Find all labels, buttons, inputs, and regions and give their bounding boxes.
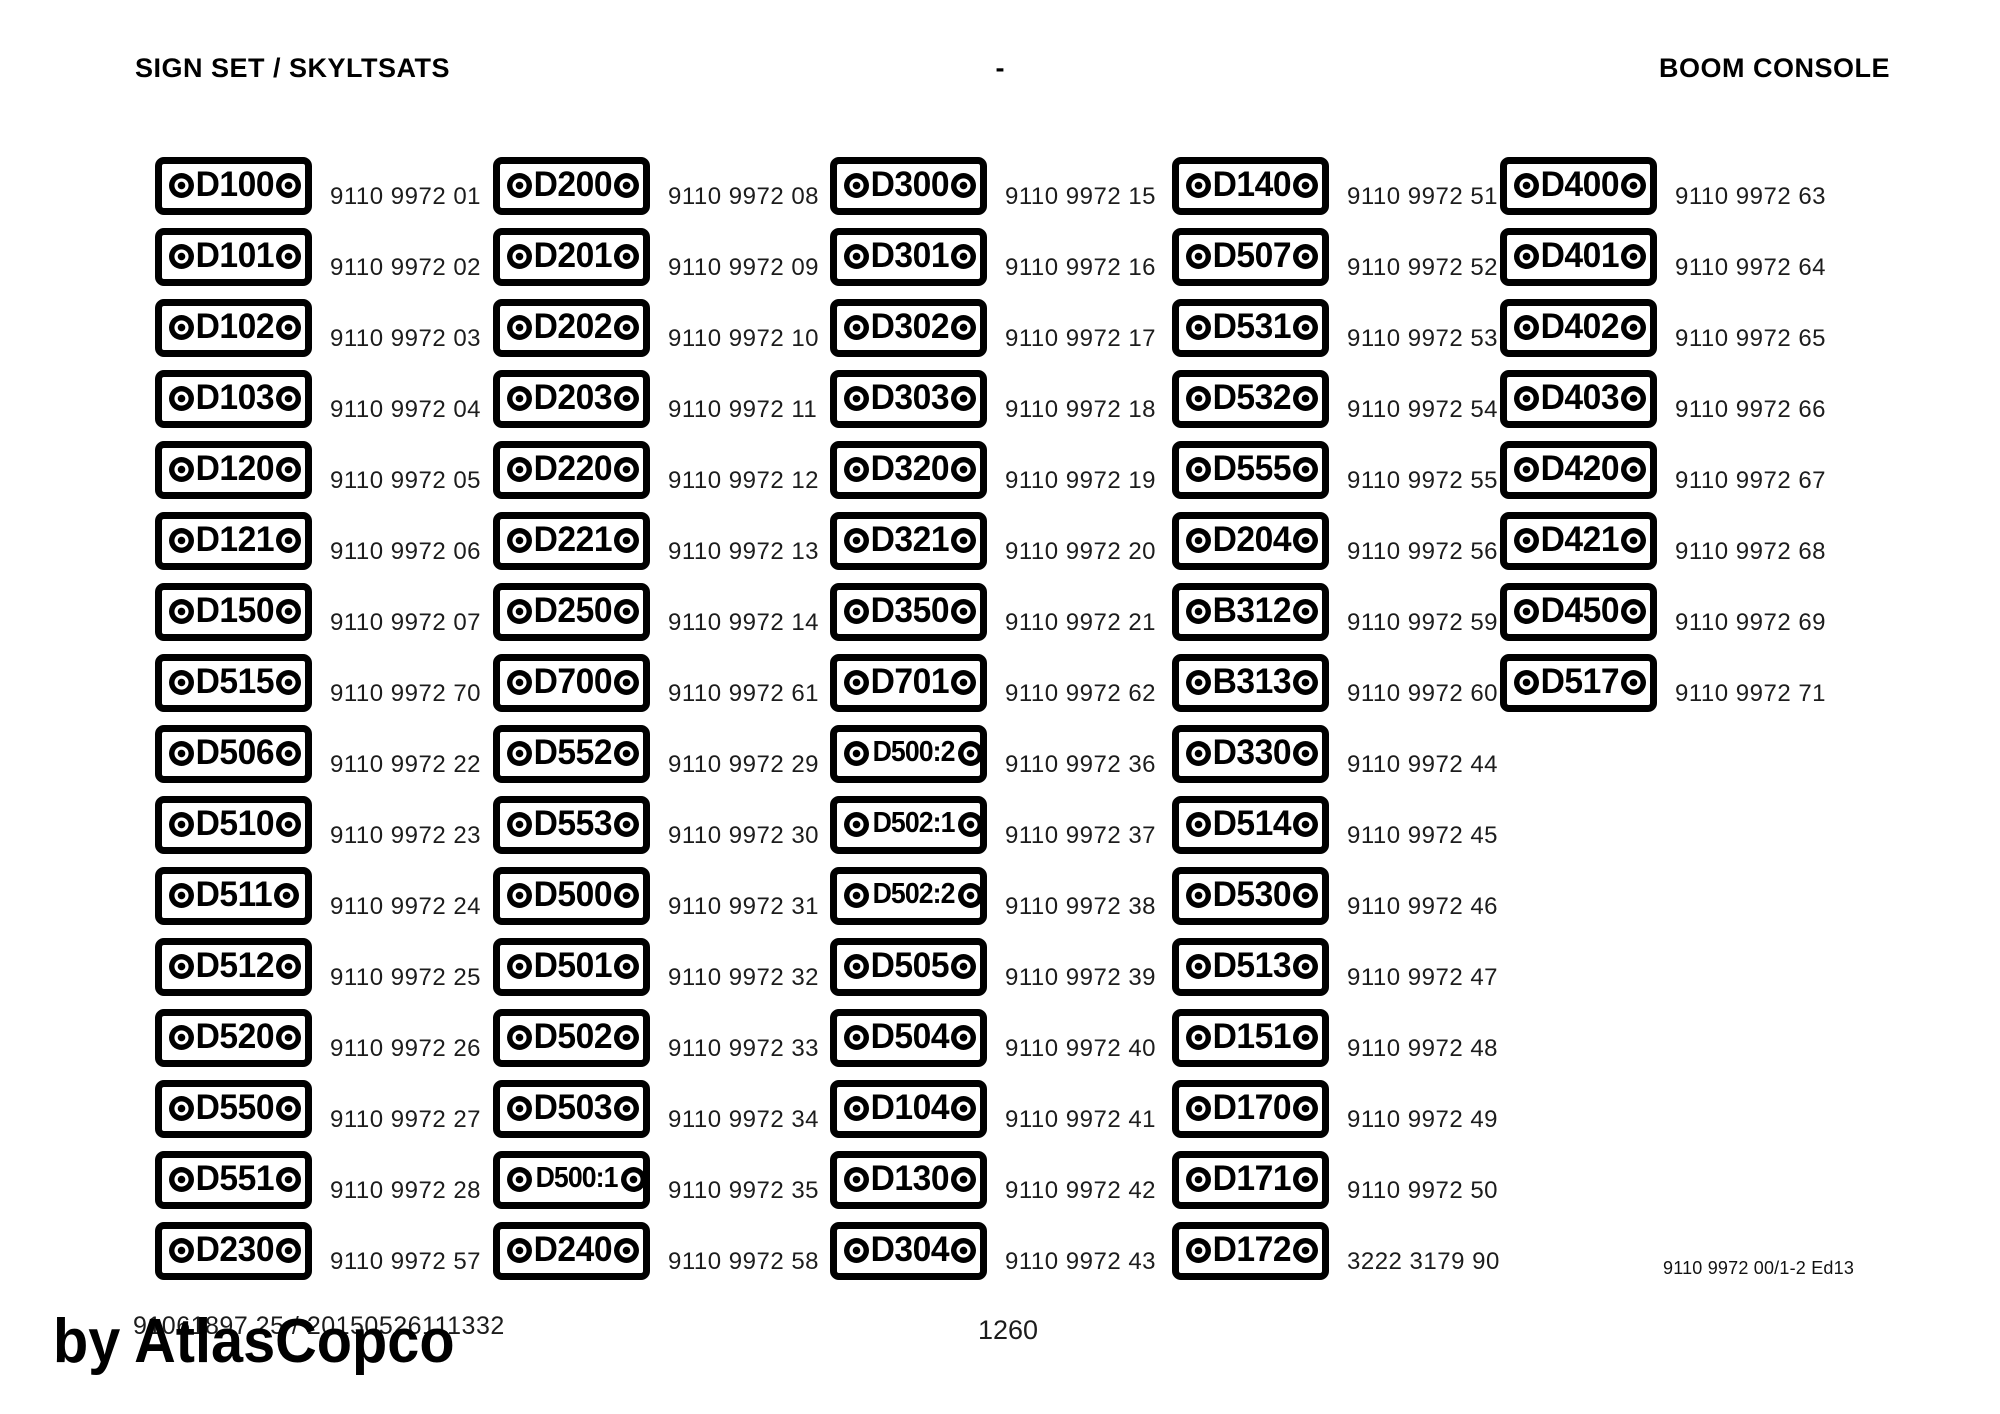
sign-row: D5329110 9972 54 [1172, 363, 1500, 434]
sign-plate: D511 [155, 867, 312, 925]
screw-hole-icon [276, 1238, 301, 1263]
sign-row: D5539110 9972 30 [493, 789, 819, 860]
screw-hole-icon [1293, 1238, 1318, 1263]
sign-plate: D302 [830, 299, 987, 357]
sign-row: D1029110 9972 03 [155, 292, 481, 363]
screw-hole-icon [614, 883, 639, 908]
sign-plate: D555 [1172, 441, 1329, 499]
screw-hole-icon [276, 173, 301, 198]
screw-hole-icon [951, 1025, 976, 1050]
part-number: 9110 9972 52 [1347, 254, 1498, 282]
part-number: 9110 9972 11 [668, 396, 817, 424]
part-number: 9110 9972 50 [1347, 1177, 1498, 1205]
sign-row: D5049110 9972 40 [830, 1002, 1156, 1073]
screw-hole-icon [1186, 954, 1211, 979]
screw-hole-icon [844, 1096, 869, 1121]
part-number: 9110 9972 28 [330, 1177, 481, 1205]
sign-row: D7019110 9972 62 [830, 647, 1156, 718]
sign-label: D553 [534, 806, 612, 843]
screw-hole-icon [844, 173, 869, 198]
sign-row: D5069110 9972 22 [155, 718, 481, 789]
part-number: 9110 9972 12 [668, 467, 819, 495]
screw-hole-icon [958, 883, 983, 908]
sign-row: D5309110 9972 46 [1172, 860, 1500, 931]
sign-plate: D350 [830, 583, 987, 641]
sign-label: D120 [196, 451, 274, 488]
sign-plate: D506 [155, 725, 312, 783]
screw-hole-icon [951, 528, 976, 553]
screw-hole-icon [958, 812, 983, 837]
screw-hole-icon [1186, 1025, 1211, 1050]
sign-row: D1219110 9972 06 [155, 505, 481, 576]
screw-hole-icon [1514, 599, 1539, 624]
sign-plate: D517 [1500, 654, 1657, 712]
part-number: 9110 9972 42 [1005, 1177, 1156, 1205]
sign-label: D531 [1213, 309, 1291, 346]
sign-label: D400 [1541, 167, 1619, 204]
part-number: 9110 9972 37 [1005, 822, 1156, 850]
screw-hole-icon [614, 670, 639, 695]
sign-row: D2029110 9972 10 [493, 292, 819, 363]
sign-plate: D551 [155, 1151, 312, 1209]
part-number: 9110 9972 26 [330, 1035, 481, 1063]
sign-label: D504 [871, 1019, 949, 1056]
screw-hole-icon [1621, 457, 1646, 482]
screw-hole-icon [507, 883, 532, 908]
sign-plate: D101 [155, 228, 312, 286]
part-number: 9110 9972 61 [668, 680, 819, 708]
screw-hole-icon [1621, 244, 1646, 269]
sign-row: D1009110 9972 01 [155, 150, 481, 221]
sign-row: D3029110 9972 17 [830, 292, 1156, 363]
screw-hole-icon [274, 883, 299, 908]
sign-label: D700 [534, 664, 612, 701]
sign-row: D4039110 9972 66 [1500, 363, 1826, 434]
sign-label: D350 [871, 593, 949, 630]
part-number: 9110 9972 20 [1005, 538, 1156, 566]
part-number: 9110 9972 15 [1005, 183, 1156, 211]
screw-hole-icon [844, 741, 869, 766]
sign-label: B313 [1213, 664, 1291, 701]
part-number: 3222 3179 90 [1347, 1248, 1500, 1276]
sign-plate: D701 [830, 654, 987, 712]
part-number: 9110 9972 27 [330, 1106, 481, 1134]
screw-hole-icon [1514, 386, 1539, 411]
screw-hole-icon [621, 1167, 646, 1192]
sign-plate: D421 [1500, 512, 1657, 570]
sign-row: D3019110 9972 16 [830, 221, 1156, 292]
sign-row: D5519110 9972 28 [155, 1144, 481, 1215]
screw-hole-icon [844, 386, 869, 411]
part-number: 9110 9972 30 [668, 822, 819, 850]
screw-hole-icon [958, 741, 983, 766]
sign-label: D503 [534, 1090, 612, 1127]
sign-row: D3009110 9972 15 [830, 150, 1156, 221]
sign-plate: D510 [155, 796, 312, 854]
screw-hole-icon [1514, 528, 1539, 553]
part-number: 9110 9972 53 [1347, 325, 1498, 353]
sign-row: D1049110 9972 41 [830, 1073, 1156, 1144]
sign-label: D150 [196, 593, 274, 630]
sign-row: D5159110 9972 70 [155, 647, 481, 718]
screw-hole-icon [1514, 173, 1539, 198]
part-number: 9110 9972 35 [668, 1177, 819, 1205]
sign-label: D507 [1213, 238, 1291, 275]
screw-hole-icon [1514, 457, 1539, 482]
screw-hole-icon [1293, 1096, 1318, 1121]
sign-row: D1723222 3179 90 [1172, 1215, 1500, 1286]
screw-hole-icon [614, 954, 639, 979]
screw-hole-icon [1293, 1025, 1318, 1050]
screw-hole-icon [844, 954, 869, 979]
screw-hole-icon [276, 528, 301, 553]
sign-row: D5529110 9972 29 [493, 718, 819, 789]
sign-plate: D321 [830, 512, 987, 570]
sign-label: D103 [196, 380, 274, 417]
sign-plate: B312 [1172, 583, 1329, 641]
sign-plate: D514 [1172, 796, 1329, 854]
part-number: 9110 9972 19 [1005, 467, 1156, 495]
screw-hole-icon [951, 315, 976, 340]
part-number: 9110 9972 16 [1005, 254, 1156, 282]
screw-hole-icon [507, 173, 532, 198]
sign-row: B3129110 9972 59 [1172, 576, 1500, 647]
sign-row: D2049110 9972 56 [1172, 505, 1500, 576]
sign-plate: D121 [155, 512, 312, 570]
sign-row: D5209110 9972 26 [155, 1002, 481, 1073]
screw-hole-icon [276, 315, 301, 340]
part-number: 9110 9972 31 [668, 893, 819, 921]
sign-plate: D150 [155, 583, 312, 641]
screw-hole-icon [614, 386, 639, 411]
sign-plate: D200 [493, 157, 650, 215]
screw-hole-icon [1186, 670, 1211, 695]
part-number: 9110 9972 43 [1005, 1248, 1156, 1276]
sign-label: D530 [1213, 877, 1291, 914]
sign-plate: D130 [830, 1151, 987, 1209]
sign-row: D1509110 9972 07 [155, 576, 481, 647]
screw-hole-icon [844, 457, 869, 482]
part-number: 9110 9972 07 [330, 609, 481, 637]
sign-row: D1309110 9972 42 [830, 1144, 1156, 1215]
sign-row: D1409110 9972 51 [1172, 150, 1500, 221]
screw-hole-icon [844, 670, 869, 695]
part-number: 9110 9972 38 [1005, 893, 1156, 921]
part-number: 9110 9972 47 [1347, 964, 1498, 992]
screw-hole-icon [169, 1096, 194, 1121]
screw-hole-icon [1621, 670, 1646, 695]
sign-plate: D402 [1500, 299, 1657, 357]
screw-hole-icon [276, 599, 301, 624]
sign-label: D101 [196, 238, 274, 275]
screw-hole-icon [276, 1096, 301, 1121]
part-number: 9110 9972 23 [330, 822, 481, 850]
screw-hole-icon [507, 599, 532, 624]
screw-hole-icon [614, 244, 639, 269]
part-number: 9110 9972 03 [330, 325, 481, 353]
screw-hole-icon [951, 386, 976, 411]
part-number: 9110 9972 64 [1675, 254, 1826, 282]
sign-plate: D520 [155, 1009, 312, 1067]
screw-hole-icon [1186, 883, 1211, 908]
sign-row: D2409110 9972 58 [493, 1215, 819, 1286]
sign-label: D201 [534, 238, 612, 275]
sign-plate: D502:2 [830, 867, 987, 925]
sign-label: D402 [1541, 309, 1619, 346]
sign-plate: D320 [830, 441, 987, 499]
sign-plate: D201 [493, 228, 650, 286]
sign-label: D151 [1213, 1019, 1291, 1056]
sign-plate: D240 [493, 1222, 650, 1280]
part-number: 9110 9972 70 [330, 680, 481, 708]
part-number: 9110 9972 68 [1675, 538, 1826, 566]
screw-hole-icon [276, 741, 301, 766]
screw-hole-icon [1293, 812, 1318, 837]
screw-hole-icon [1293, 883, 1318, 908]
sign-row: D1719110 9972 50 [1172, 1144, 1500, 1215]
screw-hole-icon [614, 528, 639, 553]
sign-row: D2219110 9972 13 [493, 505, 819, 576]
screw-hole-icon [951, 173, 976, 198]
screw-hole-icon [1186, 528, 1211, 553]
sign-row: D1709110 9972 49 [1172, 1073, 1500, 1144]
screw-hole-icon [169, 315, 194, 340]
part-number: 9110 9972 56 [1347, 538, 1498, 566]
sign-row: D7009110 9972 61 [493, 647, 819, 718]
screw-hole-icon [951, 457, 976, 482]
sign-plate: D500:2 [830, 725, 987, 783]
sign-plate: D502:1 [830, 796, 987, 854]
sign-row: D4029110 9972 65 [1500, 292, 1826, 363]
sign-row: D5109110 9972 23 [155, 789, 481, 860]
sign-label: D500:2 [873, 738, 955, 769]
sign-label: D140 [1213, 167, 1291, 204]
screw-hole-icon [1514, 670, 1539, 695]
sign-column: D1009110 9972 01D1019110 9972 02D1029110… [155, 150, 481, 1286]
sign-label: D514 [1213, 806, 1291, 843]
part-number: 9110 9972 40 [1005, 1035, 1156, 1063]
screw-hole-icon [169, 670, 194, 695]
sign-label: D532 [1213, 380, 1291, 417]
sign-row: D5019110 9972 32 [493, 931, 819, 1002]
sign-plate: D301 [830, 228, 987, 286]
screw-hole-icon [951, 1096, 976, 1121]
sign-row: D4219110 9972 68 [1500, 505, 1826, 576]
sign-plate: D550 [155, 1080, 312, 1138]
part-number: 9110 9972 59 [1347, 609, 1498, 637]
part-number: 9110 9972 48 [1347, 1035, 1498, 1063]
screw-hole-icon [169, 457, 194, 482]
sign-row: D2019110 9972 09 [493, 221, 819, 292]
sign-label: D500 [534, 877, 612, 914]
sign-plate: D700 [493, 654, 650, 712]
part-number: 9110 9972 06 [330, 538, 481, 566]
sign-label: D220 [534, 451, 612, 488]
screw-hole-icon [844, 528, 869, 553]
sign-label: D515 [196, 664, 274, 701]
screw-hole-icon [1293, 386, 1318, 411]
sign-label: D104 [871, 1090, 949, 1127]
screw-hole-icon [169, 883, 194, 908]
sign-row: D2309110 9972 57 [155, 1215, 481, 1286]
sign-label: D321 [871, 522, 949, 559]
sign-plate: D103 [155, 370, 312, 428]
sign-label: D501 [534, 948, 612, 985]
sign-row: D500:29110 9972 36 [830, 718, 1156, 789]
sign-plate: D532 [1172, 370, 1329, 428]
sign-plate: D303 [830, 370, 987, 428]
screw-hole-icon [614, 315, 639, 340]
sign-plate: D505 [830, 938, 987, 996]
sign-row: D2009110 9972 08 [493, 150, 819, 221]
screw-hole-icon [1621, 386, 1646, 411]
sign-plate: D450 [1500, 583, 1657, 641]
screw-hole-icon [844, 599, 869, 624]
part-number: 9110 9972 34 [668, 1106, 819, 1134]
part-number: 9110 9972 05 [330, 467, 481, 495]
sign-plate: D500:1 [493, 1151, 650, 1209]
sign-row: D3309110 9972 44 [1172, 718, 1500, 789]
sign-row: D5029110 9972 33 [493, 1002, 819, 1073]
sign-plate: D507 [1172, 228, 1329, 286]
sign-label: D240 [534, 1232, 612, 1269]
sign-label: D121 [196, 522, 274, 559]
part-number: 9110 9972 09 [668, 254, 819, 282]
screw-hole-icon [507, 1025, 532, 1050]
sign-label: D250 [534, 593, 612, 630]
screw-hole-icon [614, 457, 639, 482]
screw-hole-icon [1293, 741, 1318, 766]
screw-hole-icon [276, 954, 301, 979]
sign-plate: D513 [1172, 938, 1329, 996]
screw-hole-icon [169, 812, 194, 837]
sign-label: D100 [196, 167, 274, 204]
sign-plate: D140 [1172, 157, 1329, 215]
screw-hole-icon [169, 244, 194, 269]
sign-label: D301 [871, 238, 949, 275]
sign-label: D302 [871, 309, 949, 346]
screw-hole-icon [1186, 1096, 1211, 1121]
screw-hole-icon [1293, 954, 1318, 979]
sign-column: D4009110 9972 63D4019110 9972 64D4029110… [1500, 150, 1826, 718]
part-number: 9110 9972 01 [330, 183, 481, 211]
sign-row: D502:19110 9972 37 [830, 789, 1156, 860]
screw-hole-icon [507, 670, 532, 695]
screw-hole-icon [1186, 599, 1211, 624]
watermark: by AtlasCopco [53, 1303, 455, 1381]
sign-label: D172 [1213, 1232, 1291, 1269]
sign-row: D3509110 9972 21 [830, 576, 1156, 647]
sign-label: D510 [196, 806, 274, 843]
part-number: 9110 9972 44 [1347, 751, 1498, 779]
screw-hole-icon [276, 244, 301, 269]
sign-row: D2509110 9972 14 [493, 576, 819, 647]
sign-label: D304 [871, 1232, 949, 1269]
screw-hole-icon [169, 599, 194, 624]
sign-plate: D300 [830, 157, 987, 215]
screw-hole-icon [169, 173, 194, 198]
part-number: 9110 9972 39 [1005, 964, 1156, 992]
sign-plate: D512 [155, 938, 312, 996]
sign-label: D701 [871, 664, 949, 701]
page-number: 1260 [978, 1315, 1038, 1346]
screw-hole-icon [1186, 457, 1211, 482]
sign-row: B3139110 9972 60 [1172, 647, 1500, 718]
sign-row: D2209110 9972 12 [493, 434, 819, 505]
screw-hole-icon [276, 670, 301, 695]
sign-label: D303 [871, 380, 949, 417]
part-number: 9110 9972 54 [1347, 396, 1498, 424]
part-number: 9110 9972 63 [1675, 183, 1826, 211]
screw-hole-icon [507, 386, 532, 411]
sign-row: D3209110 9972 19 [830, 434, 1156, 505]
screw-hole-icon [276, 1167, 301, 1192]
sign-label: D502:1 [873, 809, 955, 840]
sign-row: D1519110 9972 48 [1172, 1002, 1500, 1073]
screw-hole-icon [507, 315, 532, 340]
part-number: 9110 9972 14 [668, 609, 819, 637]
screw-hole-icon [1186, 1238, 1211, 1263]
screw-hole-icon [1186, 244, 1211, 269]
sign-row: D3219110 9972 20 [830, 505, 1156, 576]
sign-row: D5139110 9972 47 [1172, 931, 1500, 1002]
sign-label: D517 [1541, 664, 1619, 701]
sign-plate: D403 [1500, 370, 1657, 428]
part-number: 9110 9972 36 [1005, 751, 1156, 779]
sign-plate: D420 [1500, 441, 1657, 499]
sign-label: D505 [871, 948, 949, 985]
screw-hole-icon [1293, 670, 1318, 695]
sign-label: D512 [196, 948, 274, 985]
screw-hole-icon [276, 457, 301, 482]
sign-row: D500:19110 9972 35 [493, 1144, 819, 1215]
sign-label: D551 [196, 1161, 274, 1198]
sign-plate: D151 [1172, 1009, 1329, 1067]
screw-hole-icon [507, 812, 532, 837]
sign-label: D506 [196, 735, 274, 772]
sign-row: D5149110 9972 45 [1172, 789, 1500, 860]
screw-hole-icon [276, 1025, 301, 1050]
sign-row: D3039110 9972 18 [830, 363, 1156, 434]
screw-hole-icon [169, 1025, 194, 1050]
screw-hole-icon [1514, 315, 1539, 340]
part-number: 9110 9972 57 [330, 1248, 481, 1276]
sign-row: D4009110 9972 63 [1500, 150, 1826, 221]
screw-hole-icon [614, 599, 639, 624]
sign-label: D555 [1213, 451, 1291, 488]
screw-hole-icon [507, 954, 532, 979]
screw-hole-icon [844, 1238, 869, 1263]
screw-hole-icon [951, 1167, 976, 1192]
screw-hole-icon [951, 1238, 976, 1263]
sign-row: D5129110 9972 25 [155, 931, 481, 1002]
part-number: 9110 9972 58 [668, 1248, 819, 1276]
sign-row: D5179110 9972 71 [1500, 647, 1826, 718]
part-number: 9110 9972 51 [1347, 183, 1498, 211]
sign-label: D513 [1213, 948, 1291, 985]
screw-hole-icon [169, 741, 194, 766]
screw-hole-icon [1621, 315, 1646, 340]
screw-hole-icon [1186, 812, 1211, 837]
sign-plate: D250 [493, 583, 650, 641]
sign-row: D5509110 9972 27 [155, 1073, 481, 1144]
part-number: 9110 9972 29 [668, 751, 819, 779]
part-number: 9110 9972 04 [330, 396, 481, 424]
sign-plate: D104 [830, 1080, 987, 1138]
sign-column: D1409110 9972 51D5079110 9972 52D5319110… [1172, 150, 1500, 1286]
sign-column: D3009110 9972 15D3019110 9972 16D3029110… [830, 150, 1156, 1286]
screw-hole-icon [951, 599, 976, 624]
